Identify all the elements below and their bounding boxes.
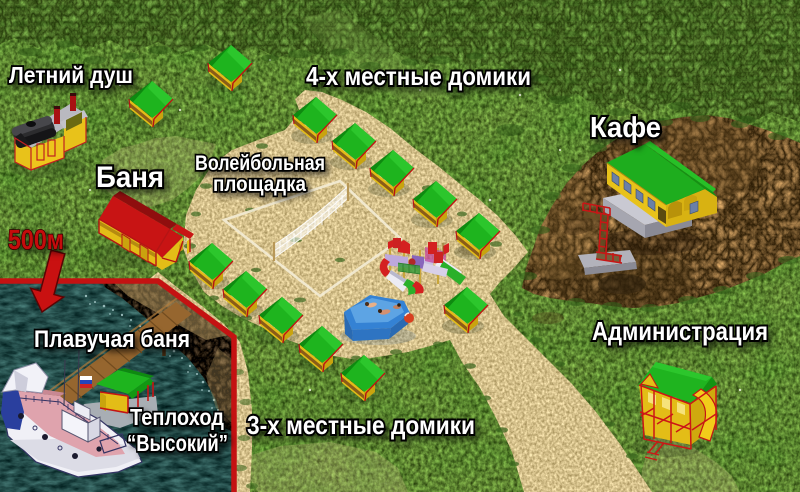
- svg-text:Баня: Баня: [96, 161, 164, 194]
- svg-text:Администрация: Администрация: [592, 316, 768, 346]
- svg-text:500м: 500м: [8, 224, 64, 255]
- svg-text:Волейбольная: Волейбольная: [195, 152, 325, 175]
- svg-text:площадка: площадка: [213, 173, 306, 196]
- svg-text:3-х местные домики: 3-х местные домики: [247, 410, 475, 440]
- svg-text:Кафе: Кафе: [590, 112, 661, 144]
- svg-text:Плавучая баня: Плавучая баня: [34, 326, 190, 353]
- svg-text:“Высокий”: “Высокий”: [127, 430, 228, 456]
- svg-text:Теплоход: Теплоход: [130, 404, 224, 430]
- svg-text:4-х местные домики: 4-х местные домики: [306, 61, 531, 91]
- svg-text:Летний душ: Летний душ: [9, 62, 133, 88]
